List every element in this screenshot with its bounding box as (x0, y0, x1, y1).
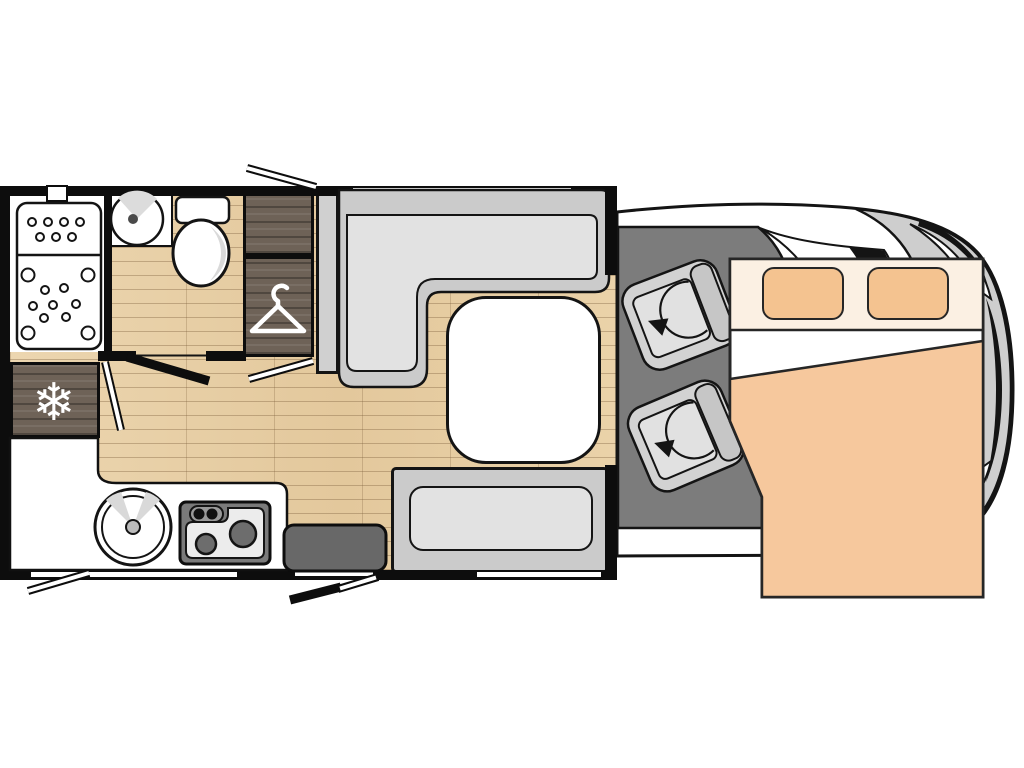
floorplan-vectors: ❄ (0, 0, 1024, 768)
burner-large (230, 521, 256, 547)
toilet (173, 197, 229, 286)
kitchen-sink (95, 489, 171, 565)
dropdown-bed (730, 259, 983, 597)
window-flap-top (247, 168, 316, 187)
pillow-left (763, 268, 843, 319)
bed-duvet (730, 341, 983, 597)
shower-detail (17, 203, 101, 349)
washroom-partition-door (127, 357, 209, 381)
wardrobe-door (249, 361, 313, 379)
hob (180, 502, 270, 564)
burner-small (196, 534, 216, 554)
floorplan-canvas: ❄ (0, 0, 1024, 768)
wall-right-lower (605, 465, 617, 580)
snowflake-icon: ❄ (32, 373, 76, 433)
wall-right-upper (605, 186, 617, 275)
entry-step (284, 525, 386, 571)
washbasin (111, 191, 163, 245)
lounge-sofa (339, 190, 609, 387)
pillow-right (868, 268, 948, 319)
hanger-icon (252, 286, 304, 331)
shower-door (105, 362, 121, 430)
entry-door (290, 577, 378, 600)
window-flap-bottom (28, 573, 89, 591)
